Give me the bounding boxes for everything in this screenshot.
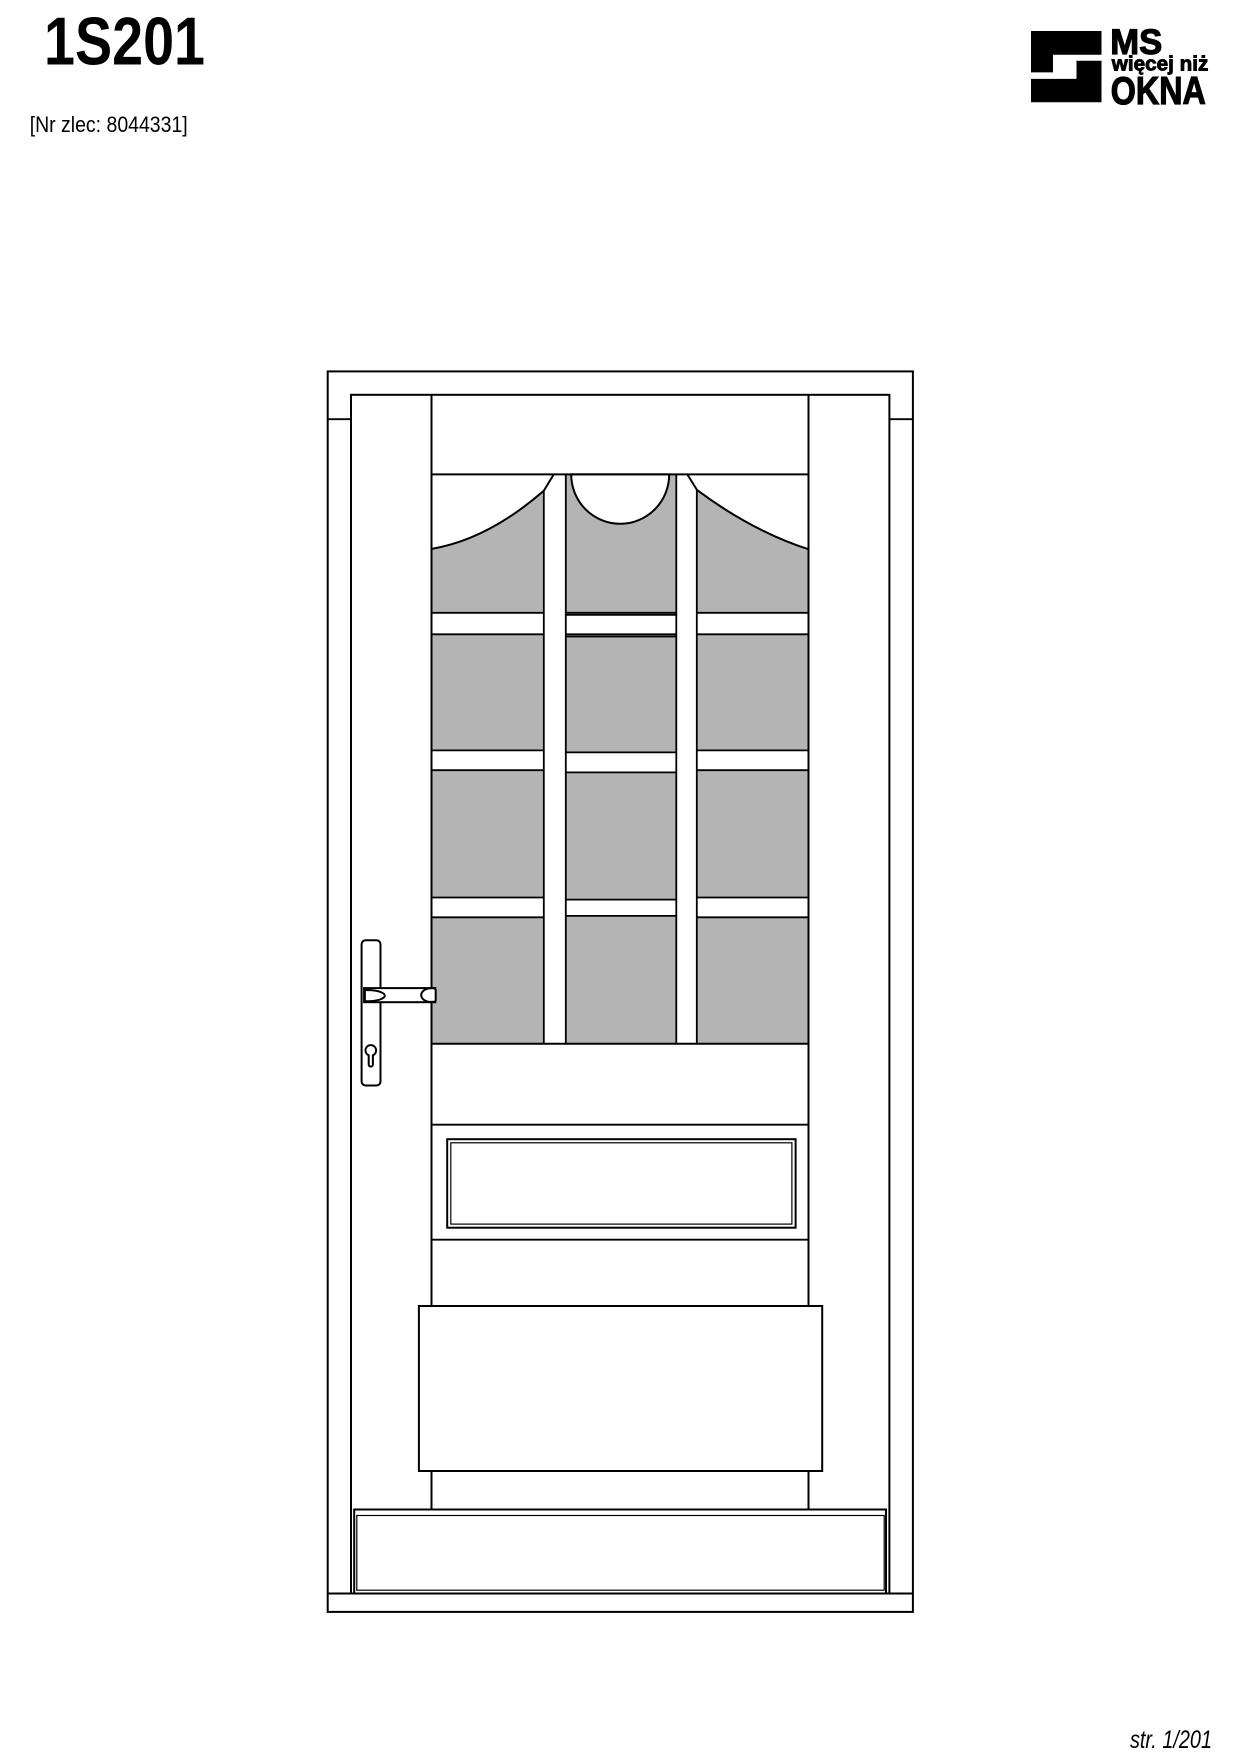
svg-text:1S201: 1S201 (44, 4, 205, 79)
svg-text:[Nr zlec: 8044331]: [Nr zlec: 8044331] (30, 112, 188, 137)
svg-text:OKNA: OKNA (1111, 70, 1206, 113)
svg-text:str. 1/201: str. 1/201 (1130, 1726, 1212, 1754)
